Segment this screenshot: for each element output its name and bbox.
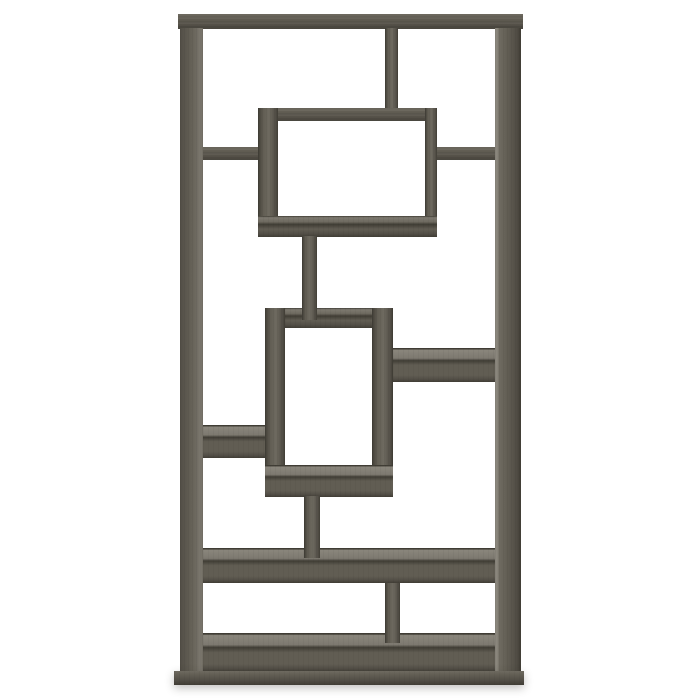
mid-right-shelf: [393, 348, 495, 382]
mid-left-shelf: [203, 425, 265, 458]
top-divider: [385, 28, 398, 110]
bottom-shelf: [203, 633, 495, 672]
upper-right-shelf: [437, 147, 495, 160]
lower-box-shelf: [265, 465, 393, 497]
upper-left-shelf: [203, 147, 258, 160]
wide-shelf: [203, 548, 495, 583]
upper-box-shelf: [258, 216, 437, 237]
center-connector-upper: [302, 236, 317, 320]
base-plinth: [174, 671, 524, 685]
lower-divider: [385, 583, 400, 643]
left-side-panel: [180, 28, 203, 673]
center-connector-lower: [304, 496, 320, 558]
bookcase: [0, 0, 700, 700]
upper-box-top: [258, 108, 437, 121]
right-side-panel: [495, 28, 521, 673]
product-photo: [0, 0, 700, 700]
top-panel: [178, 14, 523, 29]
